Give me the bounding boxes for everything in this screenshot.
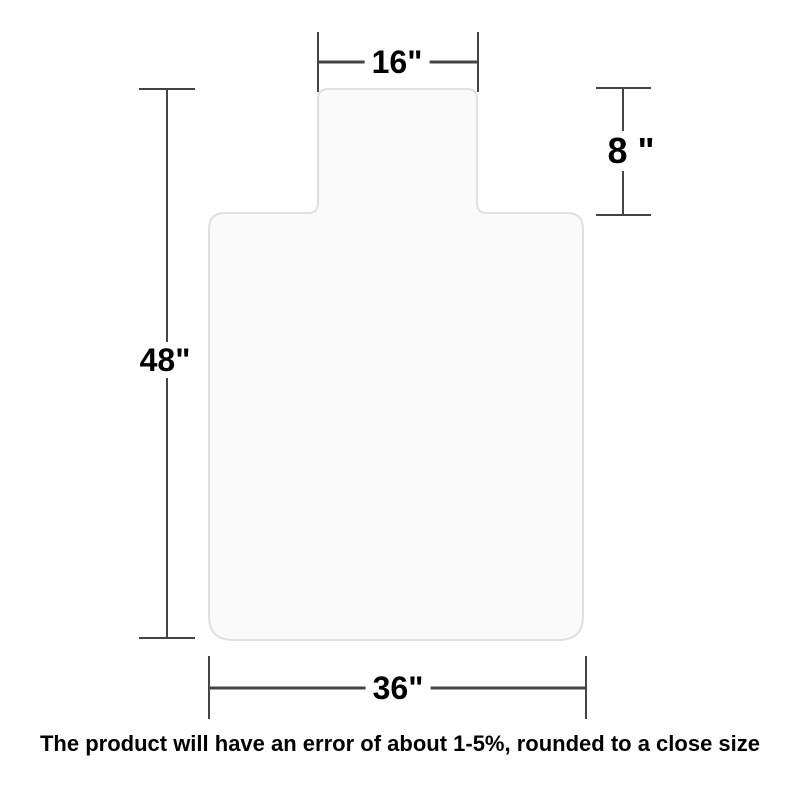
dim-label-lip-width: 16" [365, 44, 430, 80]
dim-label-lip-depth: 8 " [600, 131, 661, 171]
tolerance-note: The product will have an error of about … [0, 731, 800, 757]
dim-label-total-height: 48" [133, 342, 198, 378]
chair-mat-shape [209, 89, 583, 640]
diagram-canvas: 16" 8 " 48" 36" The product will have an… [0, 0, 800, 800]
dim-label-mat-width: 36" [366, 670, 431, 706]
